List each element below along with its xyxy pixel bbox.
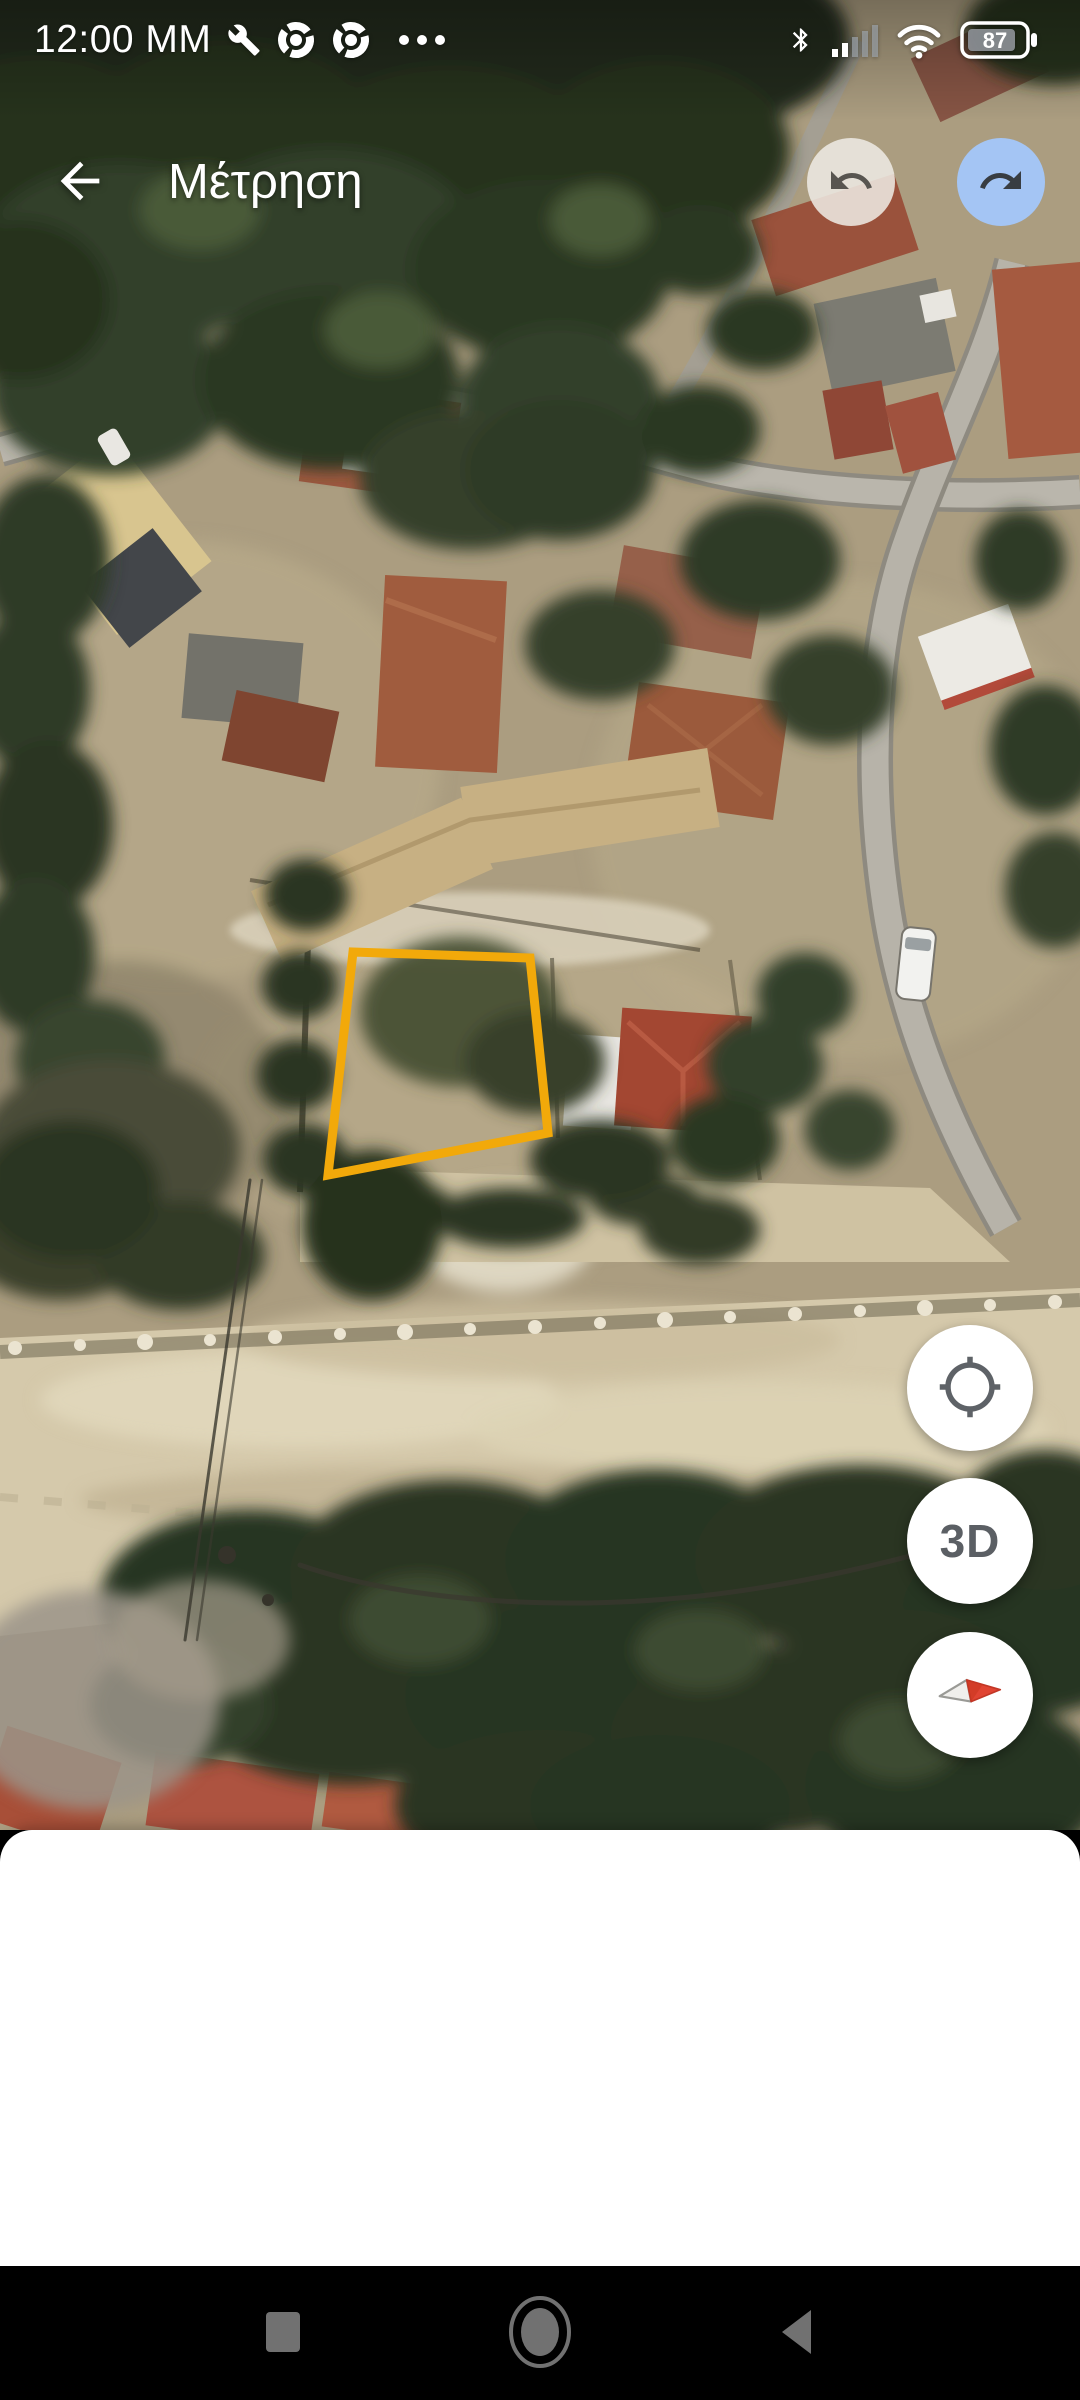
more-dots-icon [396,34,448,46]
battery-percent-text: 87 [983,28,1007,53]
battery-icon: 87 [960,20,1038,60]
android-nav-bar [0,2266,1080,2400]
undo-icon [827,157,875,208]
back-button[interactable] [36,138,124,226]
compass-needle-icon [931,1655,1009,1736]
redo-icon [977,157,1025,208]
undo-button[interactable] [807,138,895,226]
back-triangle-icon [779,2308,813,2359]
measurement-bottom-sheet: Περίμετρος ? 63 μέτρα Εμβαδόν 241 τετρ. … [0,1830,1080,2266]
recents-square-icon [265,2310,301,2357]
chrome-icon [331,20,371,60]
vehicle [895,926,936,1001]
wifi-icon [893,20,945,60]
chrome-icon [276,20,316,60]
clock: 12:00 ΜΜ [34,18,211,62]
back-nav-button[interactable] [716,2266,876,2400]
bluetooth-icon [787,21,815,59]
redo-button[interactable] [957,138,1045,226]
app-header: Μέτρηση [0,128,1080,238]
recents-button[interactable] [203,2266,363,2400]
back-arrow-icon [51,152,109,213]
compass-button[interactable] [907,1632,1033,1758]
3d-view-button[interactable]: 3D [907,1478,1033,1604]
status-bar: 12:00 ΜΜ [0,0,1080,80]
phone-screen: 12:00 ΜΜ [0,0,1080,2400]
3d-label: 3D [940,1514,1001,1568]
my-location-button[interactable] [907,1325,1033,1451]
signal-icon [830,21,878,59]
home-circle-icon [507,2294,573,2373]
page-title: Μέτρηση [168,138,363,226]
wrench-icon [227,23,261,57]
my-location-icon [937,1354,1003,1423]
home-button[interactable] [460,2266,620,2400]
